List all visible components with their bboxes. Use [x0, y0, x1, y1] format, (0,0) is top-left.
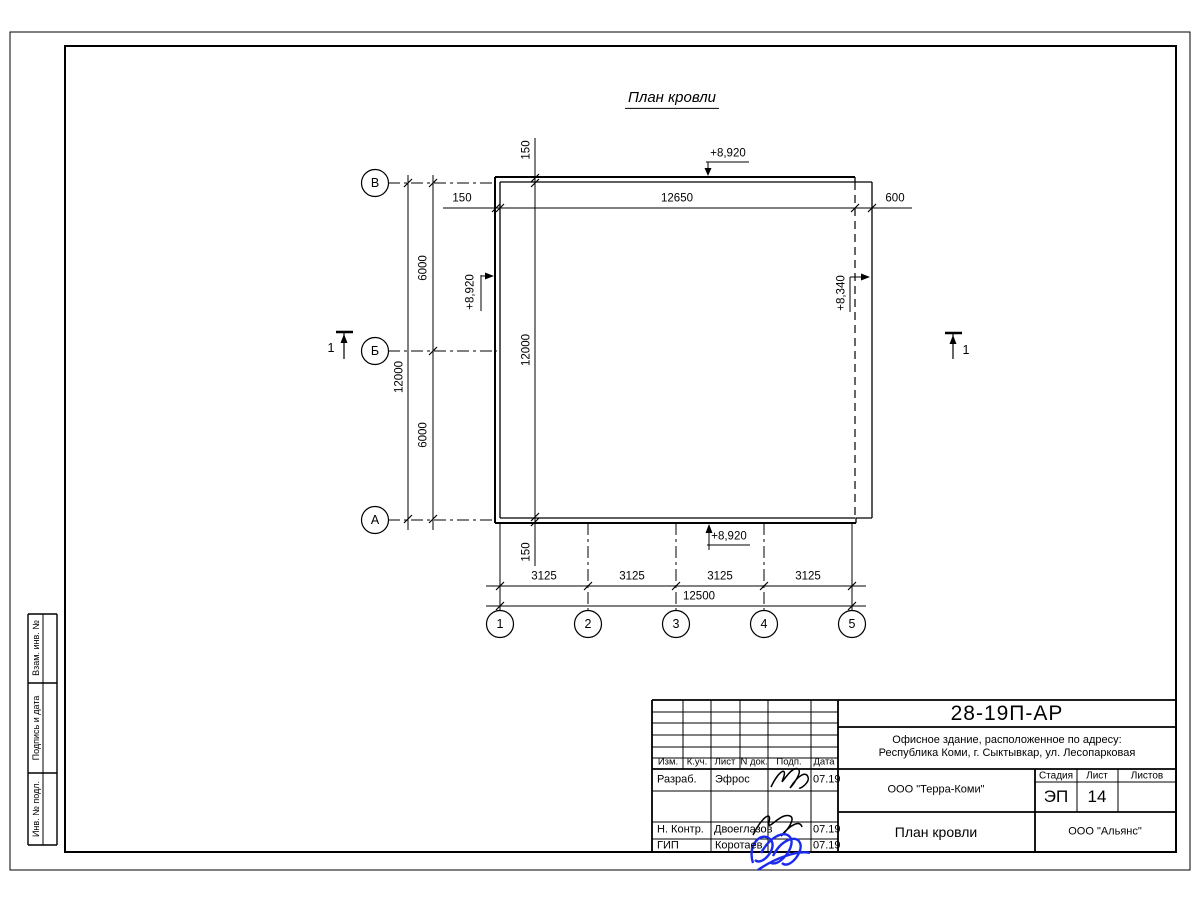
dim-left-span-lower: 6000	[417, 422, 430, 448]
elevation-top: +8,920	[710, 147, 746, 160]
axis-row-b: Б	[371, 344, 379, 358]
dim-top-overhang-right: 600	[885, 192, 904, 205]
axis-col-4: 4	[761, 617, 768, 631]
row-developer-name: Эфрос	[715, 774, 750, 787]
drawing-title: План кровли	[625, 89, 719, 109]
dim-bay-3: 3125	[707, 570, 733, 583]
axis-lines	[388, 183, 764, 611]
dim-inner-span: 12000	[520, 334, 533, 366]
section-label-left: 1	[328, 341, 335, 355]
margin-label-inv: Инв. № подл.	[31, 781, 41, 837]
dim-left-total: 12000	[393, 361, 406, 393]
dimension-ticks	[404, 174, 876, 610]
elevation-bottom: +8,920	[711, 530, 747, 543]
row-ncontrol-date: 07.19	[813, 824, 841, 837]
section-mark-bars	[336, 332, 962, 333]
drawing-sheet: План кровли 150 12650 600 150 12000 150 …	[0, 0, 1200, 900]
row-ncontrol-name: Двоеглазов	[714, 824, 772, 837]
section-mark-stems	[344, 333, 953, 359]
elevation-left: +8,920	[464, 274, 477, 310]
inner-frame	[65, 46, 1176, 852]
drawing-linework	[0, 0, 1200, 900]
row-gip-name: Коротаев	[715, 840, 763, 853]
stage-label: Стадия	[1039, 770, 1073, 782]
col-header-list: Лист	[715, 758, 736, 769]
sheets-label: Листов	[1131, 770, 1164, 782]
dim-bottom-total: 12500	[683, 590, 715, 603]
dimension-lines	[408, 138, 912, 611]
dim-top-span: 12650	[661, 192, 693, 205]
org-bottom: ООО "Альянс"	[1068, 826, 1142, 839]
row-gip-role: ГИП	[657, 840, 679, 853]
row-developer-role: Разраб.	[657, 774, 697, 787]
margin-label-podpis: Подпись и дата	[31, 696, 41, 761]
col-header-ndok: N док.	[740, 758, 767, 769]
sheet-title: План кровли	[895, 824, 977, 840]
dim-inner-overhang-top: 150	[520, 140, 533, 159]
sheet-number: 14	[1088, 787, 1107, 807]
margin-label-vzam: Взам. инв. №	[31, 620, 41, 676]
doc-number: 28-19П-АР	[951, 702, 1064, 726]
axis-row-v: В	[371, 176, 379, 190]
row-developer-date: 07.19	[813, 774, 841, 787]
project-address-line2: Республика Коми, г. Сыктывкар, ул. Лесоп…	[879, 747, 1136, 761]
dim-bay-2: 3125	[619, 570, 645, 583]
project-address-line1: Офисное здание, расположенное по адресу:	[892, 734, 1121, 748]
signature-developer	[771, 769, 808, 789]
col-header-podp: Подп.	[776, 758, 801, 769]
elevation-right: +8,340	[835, 275, 848, 311]
dim-bay-1: 3125	[531, 570, 557, 583]
roof-outline-outer	[495, 177, 856, 523]
roof-outline-inner	[500, 177, 872, 523]
col-header-izm: Изм.	[658, 758, 678, 769]
axis-circles	[362, 170, 866, 638]
org-middle: ООО "Терра-Коми"	[887, 784, 984, 797]
sheet-label: Лист	[1086, 770, 1108, 782]
dim-inner-overhang-bottom: 150	[520, 542, 533, 561]
axis-col-2: 2	[585, 617, 592, 631]
stage-value: ЭП	[1044, 787, 1068, 807]
axis-row-a: А	[371, 513, 379, 527]
row-gip-date: 07.19	[813, 840, 841, 853]
axis-col-3: 3	[673, 617, 680, 631]
col-header-kuch: К.уч.	[687, 758, 708, 769]
dim-left-span-upper: 6000	[417, 255, 430, 281]
axis-col-1: 1	[497, 617, 504, 631]
row-ncontrol-role: Н. Контр.	[657, 824, 704, 837]
col-header-data: Дата	[813, 758, 834, 769]
section-label-right: 1	[963, 343, 970, 357]
axis-col-5: 5	[849, 617, 856, 631]
dim-top-overhang-left: 150	[452, 192, 471, 205]
elevation-leaders	[481, 162, 864, 550]
dim-bay-4: 3125	[795, 570, 821, 583]
